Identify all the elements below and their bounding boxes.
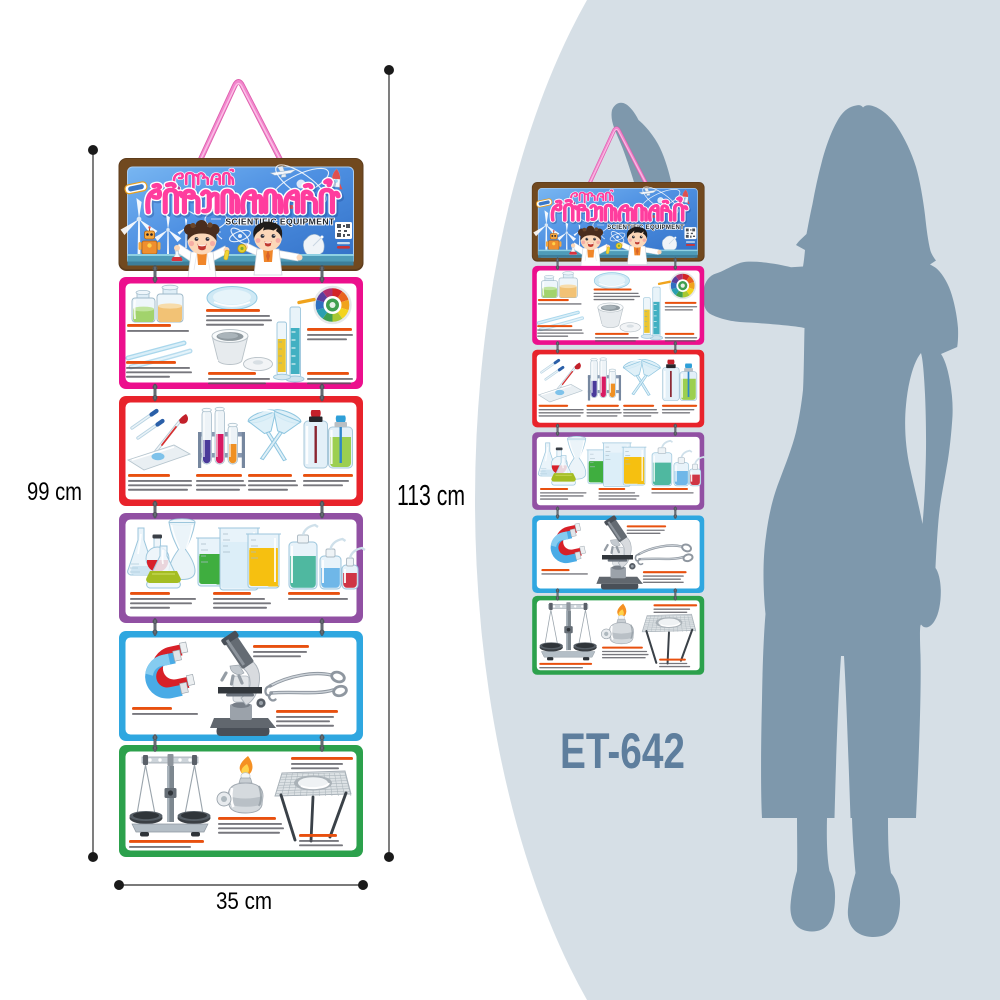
svg-text:113 cm: 113 cm (397, 480, 465, 512)
svg-text:99 cm: 99 cm (27, 478, 82, 506)
svg-text:35 cm: 35 cm (216, 888, 272, 915)
svg-text:ET-642: ET-642 (560, 723, 685, 779)
